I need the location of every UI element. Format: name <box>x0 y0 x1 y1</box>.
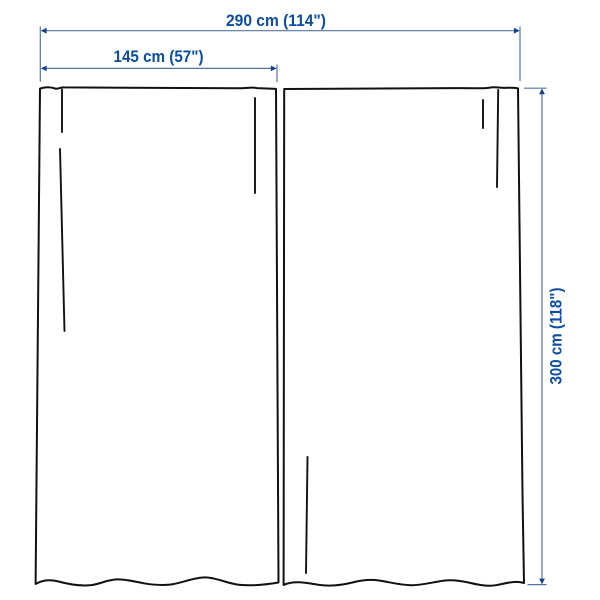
svg-text:145 cm (57"): 145 cm (57") <box>114 47 204 66</box>
svg-text:290 cm (114"): 290 cm (114") <box>226 11 326 30</box>
svg-text:300 cm (118"): 300 cm (118") <box>547 288 566 385</box>
